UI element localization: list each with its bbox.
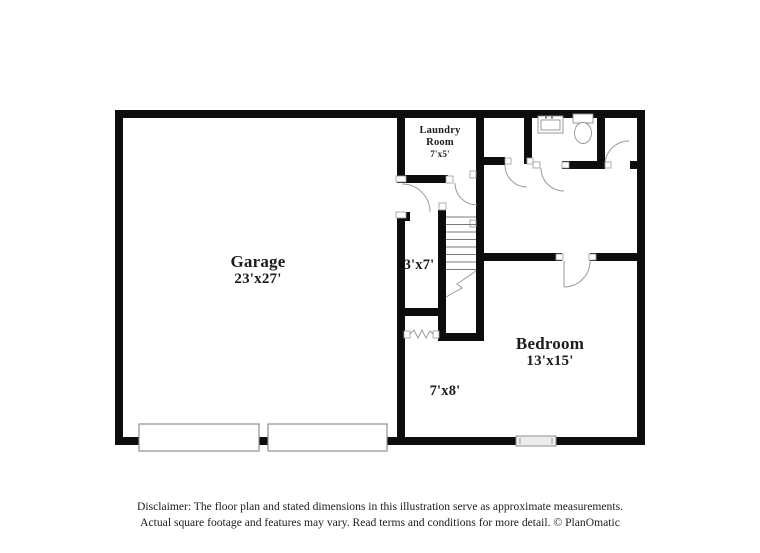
disclaimer-line-2: Actual square footage and features may v… xyxy=(0,515,760,531)
stairs-icon xyxy=(446,217,476,297)
wall-outer-right xyxy=(637,110,645,445)
room-dims: 3'x7' xyxy=(396,257,442,273)
room-dims: 7'x5' xyxy=(412,149,468,159)
sink-basin xyxy=(541,120,560,130)
wall-bedroom-top-right xyxy=(590,253,637,261)
room-dims: 13'x15' xyxy=(486,353,614,370)
door-jamb xyxy=(505,158,511,164)
opening-zigzag xyxy=(410,330,433,338)
floorplan-canvas: Garage 23'x27' Laundry Room 7'x5' 3'x7' … xyxy=(0,0,760,553)
wall-outer-left xyxy=(115,110,123,445)
garage-door-left xyxy=(139,424,259,451)
wall-bedroom-top-left xyxy=(476,253,562,261)
door-jamb xyxy=(556,254,563,260)
wall-outer-top xyxy=(115,110,645,118)
door-jamb xyxy=(605,162,611,168)
door-jamb xyxy=(446,176,453,183)
door-arc-laundry xyxy=(455,183,477,205)
wall-bathroom-right xyxy=(597,118,605,169)
door-jamb xyxy=(396,212,406,218)
toilet-tank xyxy=(573,114,593,123)
door-jamb xyxy=(470,171,476,178)
room-label-hall: 3'x7' xyxy=(396,257,442,273)
wall-closet-bottom xyxy=(484,157,505,165)
window-frame xyxy=(516,436,556,446)
disclaimer-text: Disclaimer: The floor plan and stated di… xyxy=(0,499,760,530)
toilet-icon xyxy=(573,114,593,144)
room-dims: 7'x8' xyxy=(416,383,474,399)
door-arc-closet2 xyxy=(605,141,629,165)
sink-faucet-dot xyxy=(545,116,547,118)
sink-icon xyxy=(538,116,563,133)
door-jamb xyxy=(562,162,569,168)
door-jamb xyxy=(439,203,446,210)
wall-stair-bottom xyxy=(438,333,484,341)
room-name: Laundry Room xyxy=(412,125,468,149)
door-jamb xyxy=(396,176,406,182)
room-dims: 23'x27' xyxy=(196,271,320,288)
door-arc-closet xyxy=(505,165,527,187)
outer-walls xyxy=(115,110,645,445)
room-label-laundry: Laundry Room 7'x5' xyxy=(412,125,468,159)
door-jamb xyxy=(533,162,540,168)
toilet-bowl xyxy=(575,123,592,144)
door-arc-bathroom xyxy=(541,168,564,191)
door-arc-garage xyxy=(402,184,430,212)
wall-stair-left xyxy=(438,210,446,341)
door-jamb xyxy=(527,158,533,164)
room-name: Bedroom xyxy=(486,334,614,353)
garage-door-right xyxy=(268,424,387,451)
window-bedroom xyxy=(516,436,556,446)
sink-faucet-dot xyxy=(551,116,553,118)
room-label-bedroom: Bedroom 13'x15' xyxy=(486,334,614,370)
door-jamb xyxy=(470,220,476,227)
wall-garage-separator-upper xyxy=(397,118,405,182)
room-label-flex: 7'x8' xyxy=(416,383,474,399)
wall-garage-separator-lower xyxy=(397,212,405,437)
wall-hall-bottom xyxy=(397,308,440,316)
wall-closet2-stub xyxy=(630,161,637,169)
door-jamb xyxy=(404,331,410,338)
wall-stair-right xyxy=(476,118,484,341)
floorplan-drawing xyxy=(0,0,760,553)
room-label-garage: Garage 23'x27' xyxy=(196,252,320,288)
room-name: Garage xyxy=(196,252,320,271)
wall-bathroom-left xyxy=(524,118,532,164)
door-jamb xyxy=(433,331,439,338)
door-jamb xyxy=(589,254,596,260)
disclaimer-line-1: Disclaimer: The floor plan and stated di… xyxy=(0,499,760,515)
door-arc-bedroom xyxy=(564,261,590,287)
stair-break-line xyxy=(446,271,476,297)
